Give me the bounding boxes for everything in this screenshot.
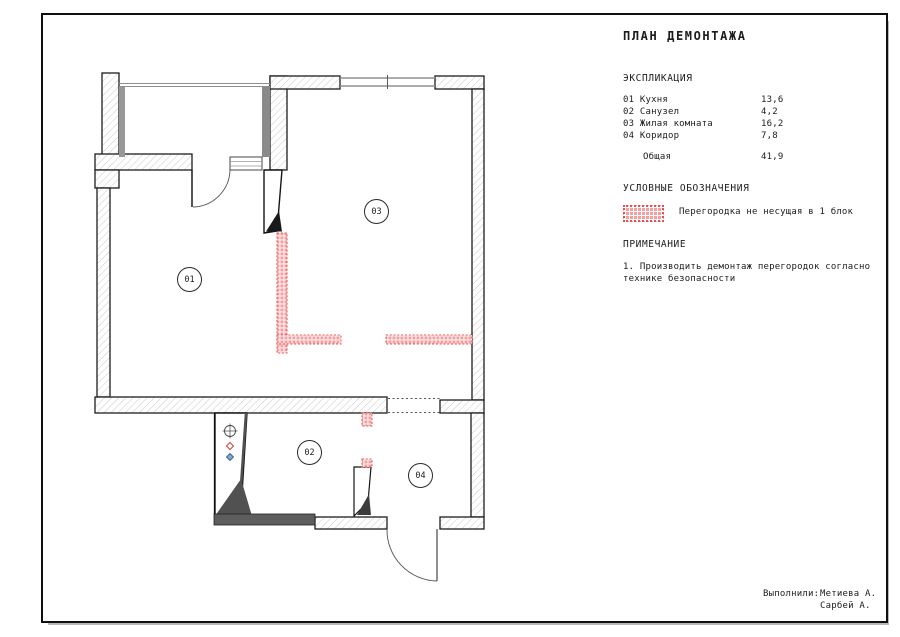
window-kitchen-balcony — [230, 157, 262, 170]
explication-row-value: 13,6 — [761, 95, 783, 105]
demolition-partitions — [277, 233, 472, 467]
explication-total-value: 41,9 — [761, 152, 783, 162]
explication-row-label: 04 Коридор — [623, 131, 679, 141]
page-title: ПЛАН ДЕМОНТАЖА — [623, 30, 747, 44]
note-line: технике безопасности — [623, 274, 735, 284]
credits-label: Выполнили: — [763, 589, 819, 599]
explication-row-value: 16,2 — [761, 119, 783, 129]
pink-dashed-partition-swatch — [623, 205, 664, 222]
room-label-bathroom: 02 — [297, 440, 322, 465]
demolished-openings — [388, 399, 440, 413]
entrance-door — [387, 529, 437, 581]
note-line: 1. Производить демонтаж перегородок согл… — [623, 262, 870, 272]
room-label-kitchen: 01 — [177, 267, 202, 292]
balcony-door — [192, 170, 230, 207]
glazing-strip-right — [262, 87, 270, 157]
open-door-leaf-room01-03 — [264, 170, 282, 233]
explication-header: ЭКСПЛИКАЦИЯ — [623, 74, 693, 85]
explication-row-label: 03 Жилая комната — [623, 119, 713, 129]
glazing-strip-left — [119, 87, 125, 157]
explication-row-value: 7,8 — [761, 131, 778, 141]
window-room03 — [340, 75, 435, 89]
explication-row-label: 02 Санузел — [623, 107, 679, 117]
room-label-corridor: 04 — [408, 463, 433, 488]
explication-row-value: 4,2 — [761, 107, 778, 117]
explication-row-label: 01 Кухня — [623, 95, 668, 105]
credits-name: Метиева А. — [820, 589, 876, 599]
open-door-leaf-corridor — [354, 467, 371, 516]
room-label-living-room: 03 — [364, 199, 389, 224]
load-bearing-walls — [95, 73, 484, 529]
credits-name: Сарбей А. — [820, 601, 871, 611]
note-header: ПРИМЕЧАНИЕ — [623, 240, 686, 251]
demolition-plan-page: { "title": "ПЛАН ДЕМОНТАЖА", "explicatio… — [0, 0, 900, 637]
legend-header: УСЛОВНЫЕ ОБОЗНАЧЕНИЯ — [623, 184, 749, 195]
explication-total-label: Общая — [643, 152, 671, 162]
legend-item-label: Перегородка не несущая в 1 блок — [679, 207, 853, 217]
